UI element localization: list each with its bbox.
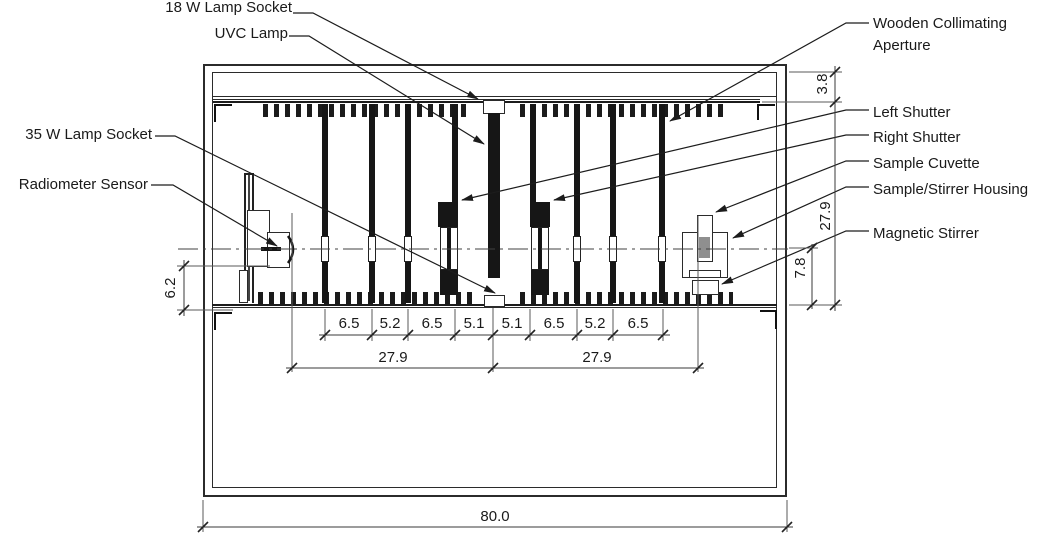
left-shutter-stem — [452, 104, 458, 202]
dim-spacing-1: 6.5 — [327, 316, 371, 332]
corner-bracket-top-left — [214, 104, 232, 122]
label-wooden-collimating-line2: Aperture — [873, 35, 1007, 57]
uvc-lamp-shape — [488, 113, 500, 278]
sample-cuvette-shape — [697, 215, 713, 262]
corner-bracket-bottom-right — [760, 310, 777, 329]
label-35w-lamp-socket: 35 W Lamp Socket — [5, 127, 152, 143]
left-shutter-top-block — [438, 202, 458, 227]
lamp-socket-35w-shape — [484, 295, 505, 307]
left-shutter-slider-post — [447, 228, 451, 269]
label-uvc-lamp: UVC Lamp — [88, 26, 288, 42]
label-sample-stirrer-housing: Sample/Stirrer Housing — [873, 179, 1028, 201]
stirrer-top-plate — [689, 270, 721, 278]
aperture-plate-4 — [574, 104, 580, 303]
aperture-plate-1 — [322, 104, 328, 303]
aperture-slot — [609, 236, 617, 262]
aperture-plate-2 — [369, 104, 375, 303]
label-wooden-collimating-line1: Wooden Collimating — [873, 13, 1007, 35]
aperture-slot — [321, 236, 329, 262]
right-shutter-slider-post — [538, 228, 542, 269]
dim-spacing-6: 6.5 — [532, 316, 576, 332]
label-sample-cuvette: Sample Cuvette — [873, 153, 980, 175]
dim-lamp-to-sensor: 27.9 — [368, 350, 418, 366]
label-radiometer-sensor: Radiometer Sensor — [2, 177, 148, 193]
lamp-socket-18w-shape — [483, 100, 505, 114]
aperture-slot — [573, 236, 581, 262]
label-magnetic-stirrer: Magnetic Stirrer — [873, 223, 979, 245]
dim-spacing-8: 6.5 — [616, 316, 660, 332]
corner-bracket-bottom-left — [214, 312, 232, 330]
right-shutter-assembly — [527, 104, 553, 305]
dim-total-width: 80.0 — [465, 509, 525, 525]
right-shutter-top-block — [530, 202, 550, 227]
aperture-plate-6 — [659, 104, 665, 303]
dim-sample-axis-height: 7.8 — [793, 246, 809, 290]
dim-chamber-inner-height: 27.9 — [818, 194, 834, 238]
left-shutter-slider — [440, 227, 458, 270]
aperture-plate-3 — [405, 104, 411, 303]
sensor-nozzle — [261, 247, 281, 251]
dim-lamp-to-sample: 27.9 — [572, 350, 622, 366]
label-wooden-collimating-aperture: Wooden Collimating Aperture — [873, 13, 1007, 57]
right-shutter-slider — [531, 227, 549, 270]
collimated-beam-apparatus-diagram: 18 W Lamp Socket UVC Lamp 35 W Lamp Sock… — [0, 0, 1050, 536]
top-panel-bottom-line — [212, 96, 777, 97]
corner-bracket-top-right — [757, 104, 775, 120]
left-shutter-bottom-block — [440, 270, 458, 295]
aperture-slot — [404, 236, 412, 262]
dim-spacing-3: 6.5 — [410, 316, 454, 332]
dim-spacing-7: 5.2 — [573, 316, 617, 332]
aperture-slot — [368, 236, 376, 262]
left-shutter-assembly — [435, 104, 461, 305]
dim-sensor-axis-height: 6.2 — [163, 266, 179, 310]
label-right-shutter: Right Shutter — [873, 127, 961, 149]
aperture-plate-5 — [610, 104, 616, 303]
magnetic-stirrer-shape — [692, 280, 719, 295]
aperture-slot — [658, 236, 666, 262]
sensor-base — [239, 270, 248, 303]
label-18w-lamp-socket: 18 W Lamp Socket — [92, 0, 292, 16]
dim-spacing-5: 5.1 — [490, 316, 534, 332]
label-left-shutter: Left Shutter — [873, 102, 951, 124]
right-shutter-stem — [530, 104, 536, 202]
radiometer-sensor-assembly — [239, 173, 299, 303]
cuvette-sample-fill — [699, 237, 710, 258]
right-shutter-bottom-block — [531, 270, 549, 295]
dim-spacing-2: 5.2 — [368, 316, 412, 332]
dim-top-panel-height: 3.8 — [815, 62, 831, 106]
